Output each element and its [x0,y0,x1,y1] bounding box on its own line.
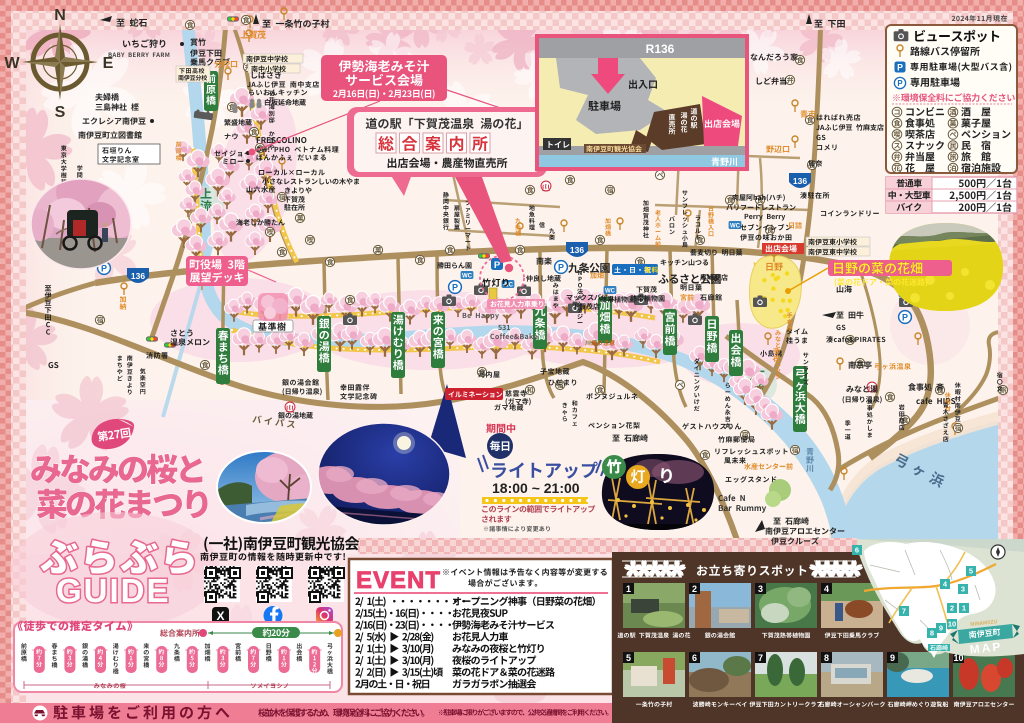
svg-text:2: 2 [950,604,954,613]
svg-text:2: 2 [692,584,697,594]
svg-text:GUIDE: GUIDE [56,572,171,609]
svg-text:E: E [103,55,114,72]
svg-text:10: 10 [948,620,956,629]
svg-text:W: W [4,55,20,72]
svg-text:9: 9 [939,624,943,633]
svg-text:N: N [54,7,66,24]
svg-text:7: 7 [902,607,906,616]
svg-text:8: 8 [824,653,829,663]
svg-text:EVENT: EVENT [356,567,441,594]
svg-text:18:00 ~ 21:00: 18:00 ~ 21:00 [492,480,580,496]
svg-text:6: 6 [855,546,859,555]
svg-text:3: 3 [961,585,965,594]
svg-text:1: 1 [626,584,631,594]
svg-text:R136: R136 [646,42,675,56]
svg-text:3: 3 [758,584,763,594]
svg-text:5: 5 [626,653,631,663]
svg-text:X: X [216,609,224,623]
svg-text:S: S [55,104,66,121]
svg-text:7: 7 [758,653,763,663]
svg-text:4: 4 [824,584,829,594]
svg-text:1: 1 [962,604,966,613]
svg-text:9: 9 [890,653,895,663]
svg-text:6: 6 [692,653,697,663]
svg-text:5: 5 [969,567,973,576]
svg-text:8: 8 [930,629,934,638]
